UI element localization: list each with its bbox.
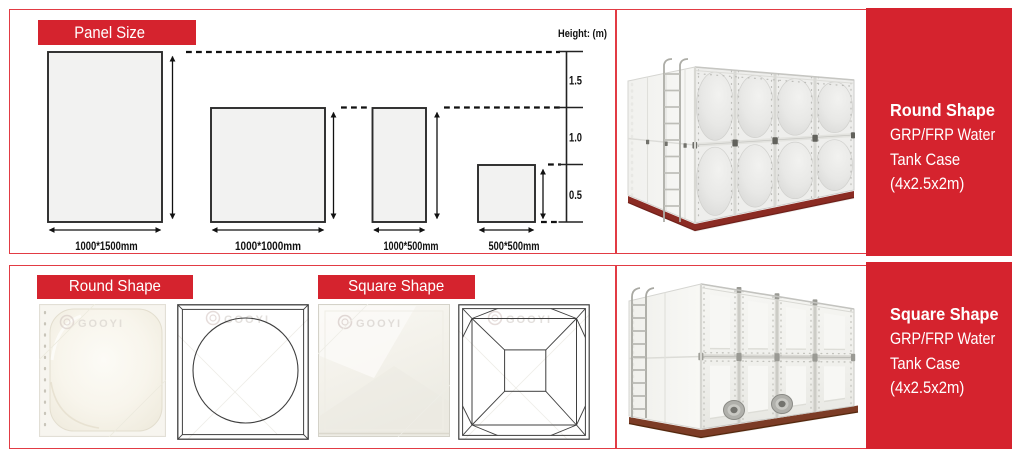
svg-text:GOOYI: GOOYI [506, 314, 552, 326]
svg-text:GOOYI: GOOYI [356, 318, 402, 330]
svg-text:Height: (m): Height: (m) [558, 28, 607, 40]
svg-text:1.0: 1.0 [569, 133, 582, 145]
svg-text:0.5: 0.5 [569, 190, 582, 202]
svg-text:500*500mm: 500*500mm [489, 241, 540, 253]
svg-text:GOOYI: GOOYI [78, 318, 124, 330]
svg-text:1000*1500mm: 1000*1500mm [75, 241, 138, 253]
svg-text:1.5: 1.5 [569, 76, 582, 88]
svg-text:1000*500mm: 1000*500mm [384, 241, 439, 253]
svg-text:1000*1000mm: 1000*1000mm [235, 241, 301, 253]
